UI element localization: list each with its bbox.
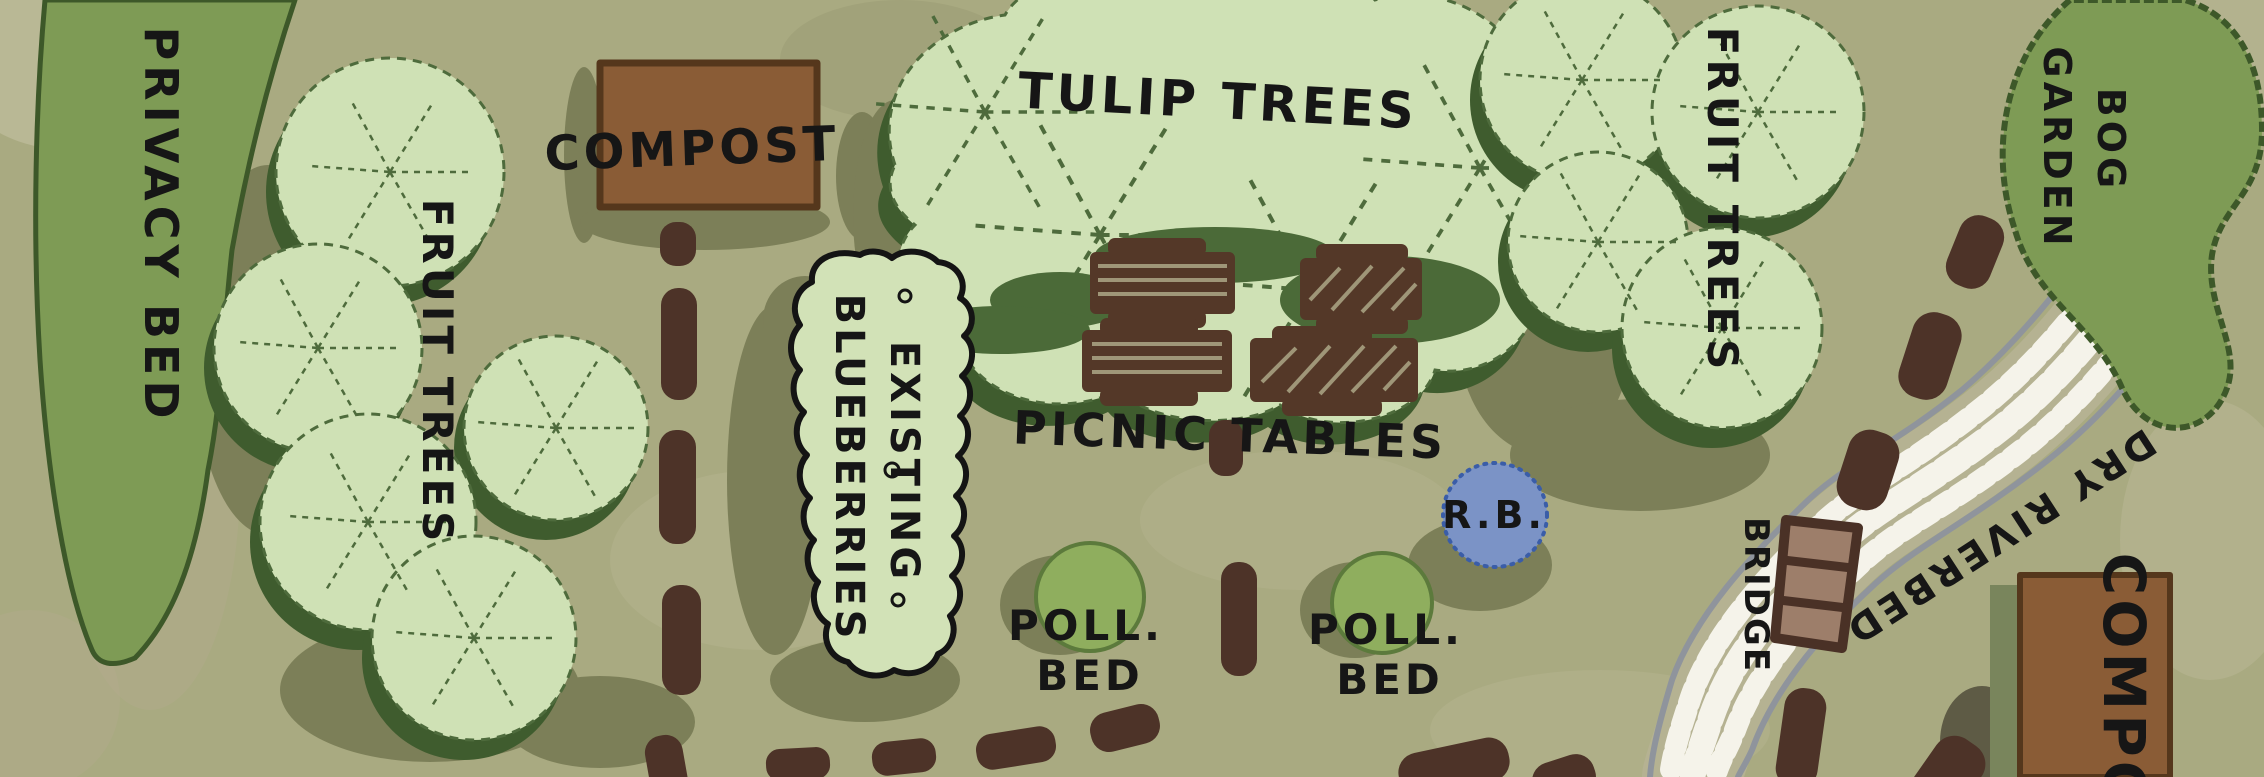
garden-plan-canvas: PRIVACY BED COMPOST FRUIT TREES TULIP TR…: [0, 0, 2264, 777]
bridge-label: BRIDGE: [1736, 517, 1776, 673]
existing-blueberries-label-line1: EXISTING: [881, 341, 927, 583]
rain-barrel-label: R.B.: [1442, 493, 1546, 537]
compost-top-label: COMPOST: [544, 116, 841, 182]
poll-bed-2-label-line2: BED: [1336, 655, 1444, 704]
poll-bed-1-label-line1: POLL.: [1008, 601, 1164, 650]
picnic-table: [1300, 244, 1422, 334]
garden-plan-svg: PRIVACY BED COMPOST FRUIT TREES TULIP TR…: [0, 0, 2264, 777]
existing-blueberries-label-line2: BLUEBERRIES: [826, 294, 872, 643]
poll-bed-2-label-line1: POLL.: [1308, 605, 1464, 654]
fruit-trees-right-label: FRUIT TREES: [1698, 27, 1747, 374]
fruit-trees-left-label: FRUIT TREES: [413, 199, 462, 546]
bog-garden-label-line1: BOG: [2089, 88, 2133, 192]
privacy-bed-label: PRIVACY BED: [134, 26, 188, 423]
compost-bottom-label: COMPOST: [2090, 553, 2158, 777]
bog-garden-label-line2: GARDEN: [2035, 46, 2079, 249]
poll-bed-1-label-line2: BED: [1036, 651, 1144, 700]
